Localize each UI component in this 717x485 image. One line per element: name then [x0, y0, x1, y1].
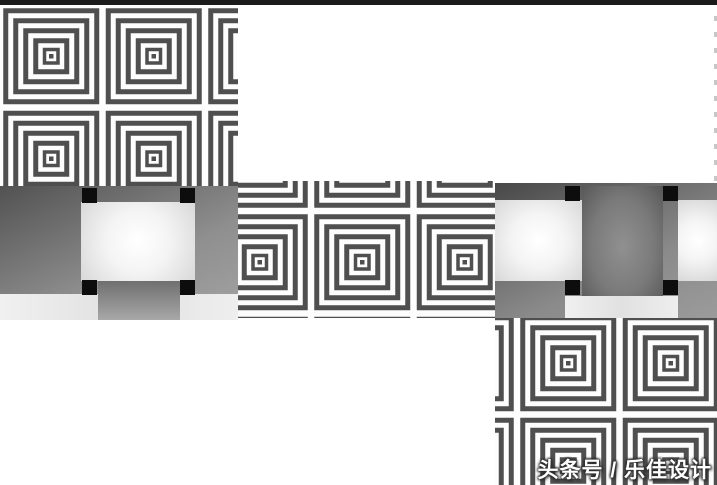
stripe-swatch-center [238, 181, 495, 318]
weave-black-corner [180, 280, 195, 295]
watermark-text: 头条号 / 乐佳设计 [537, 454, 712, 484]
weave-light-square [495, 200, 582, 281]
stripe-swatch-top-left [0, 5, 238, 186]
weave-black-corner [565, 186, 580, 201]
weave-light-square [678, 200, 717, 281]
weave-black-corner [180, 188, 195, 203]
weave-swatch-left [0, 186, 238, 320]
weave-dark-column [582, 186, 663, 296]
weave-black-corner [82, 188, 97, 203]
weave-swatch-right [495, 183, 717, 318]
weave-black-corner [663, 186, 678, 201]
weave-black-corner [663, 280, 678, 295]
weave-black-corner [565, 280, 580, 295]
weave-light-strip [565, 296, 678, 318]
canvas: 头条号 / 乐佳设计 [0, 0, 717, 485]
weave-black-corner [82, 280, 97, 295]
weave-dark-column [98, 281, 180, 320]
top-black-bar [0, 0, 717, 5]
weave-light-square [81, 202, 195, 281]
